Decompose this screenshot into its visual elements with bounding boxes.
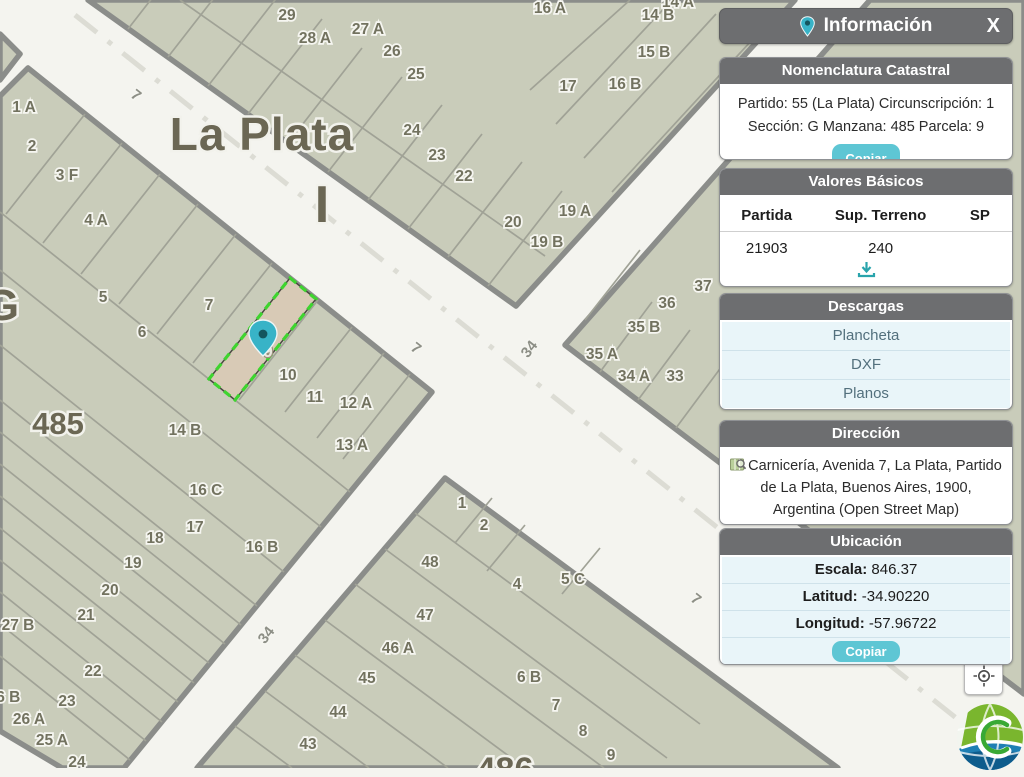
escala-label: Escala:	[815, 561, 868, 578]
parcel-label: 4 A	[84, 212, 108, 229]
sup-terreno-value: 240	[813, 232, 947, 260]
nomenclatura-line1: Partido: 55 (La Plata) Circunscripción: …	[720, 93, 1012, 116]
parcel-label: 23	[428, 147, 446, 164]
longitud-label: Longitud:	[796, 615, 865, 632]
parcel-label: 48	[421, 554, 439, 571]
street-label: 34	[255, 623, 279, 647]
street-label: 7	[127, 86, 144, 105]
longitud-row: Longitud: -57.96722	[722, 611, 1010, 638]
parcel-label: 1	[458, 495, 467, 512]
latitud-value: -34.90220	[862, 588, 930, 605]
parcel-label: 20	[101, 582, 118, 599]
direccion-text: Carnicería, Avenida 7, La Plata, Partido…	[748, 458, 1002, 518]
download-plancheta-link[interactable]: Plancheta	[722, 322, 1010, 351]
parcel-label: 36	[658, 295, 676, 312]
copy-nomenclatura-button[interactable]: Copiar	[832, 144, 899, 160]
parcel-label: 18	[146, 530, 164, 547]
parcel-label: 25 A	[36, 732, 68, 749]
parcel-label: 13 A	[336, 437, 368, 454]
escala-row: Escala: 846.37	[722, 557, 1010, 584]
section-valores-title: Valores Básicos	[720, 169, 1012, 195]
section-direccion-title: Dirección	[720, 421, 1012, 447]
nomenclatura-line2: Sección: G Manzana: 485 Parcela: 9	[720, 116, 1012, 139]
parcel-label: 47	[416, 607, 433, 624]
close-icon[interactable]: X	[987, 14, 1000, 38]
section-ubicacion: Ubicación Escala: 846.37 Latitud: -34.90…	[719, 528, 1013, 665]
parcel-label: 27 A	[352, 21, 384, 38]
street-label: 7	[407, 339, 424, 358]
parcel-label: 35 A	[586, 346, 618, 363]
section-ubicacion-title: Ubicación	[720, 529, 1012, 555]
parcel-label: 5 C	[561, 571, 585, 588]
parcel-label: 33	[666, 368, 684, 385]
parcel-label: 44	[329, 704, 347, 721]
parcel-label: 24	[403, 122, 421, 139]
parcel-label: 45	[358, 670, 376, 687]
panel-header: Información X	[719, 8, 1013, 44]
street-label: 34	[518, 337, 542, 361]
block-number-label: 485	[32, 406, 84, 441]
parcel-label: 16 B	[609, 76, 642, 93]
sp-value	[948, 232, 1012, 260]
parcel-label: 17	[559, 78, 576, 95]
parcel-label: 16 C	[190, 482, 223, 499]
parcel-label: 43	[299, 736, 317, 753]
parcel-label: 7	[552, 697, 561, 714]
parcel-label: 5	[99, 289, 108, 306]
parcel-label: 1 A	[12, 99, 36, 116]
section-nomenclatura-title: Nomenclatura Catastral	[720, 58, 1012, 84]
section-valores: Valores Básicos Partida Sup. Terreno SP …	[719, 168, 1013, 287]
longitud-value: -57.96722	[869, 615, 937, 632]
parcel-label: 29	[278, 7, 296, 24]
parcel-label: 21	[77, 607, 95, 624]
section-direccion: Dirección Carnicería, Avenida 7, La Plat…	[719, 420, 1013, 525]
parcel-label: 19	[124, 555, 142, 572]
parcel-label: 22	[455, 168, 472, 185]
valores-table: Partida Sup. Terreno SP 21903 240	[720, 201, 1012, 259]
parcel-label: 19 B	[531, 234, 564, 251]
parcel-label: 11	[307, 389, 324, 406]
parcel-label: 8	[579, 723, 588, 740]
info-panel: Información X Nomenclatura Catastral Par…	[719, 0, 1013, 768]
parcel-label: 26 A	[13, 711, 45, 728]
parcel-label: 16 A	[534, 0, 566, 17]
partida-value: 21903	[720, 232, 813, 260]
parcel-label: 15 B	[638, 44, 671, 61]
parcel-label: 2	[28, 138, 37, 155]
col-partida: Partida	[720, 201, 813, 232]
parcel-label: 7	[205, 297, 214, 314]
section-nomenclatura: Nomenclatura Catastral Partido: 55 (La P…	[719, 57, 1013, 160]
ubicacion-footer: Copiar	[722, 638, 1010, 665]
parcel-label: 22	[84, 663, 101, 680]
latitud-label: Latitud:	[803, 588, 858, 605]
parcel-label: 3 F	[56, 167, 78, 184]
col-sup-terreno: Sup. Terreno	[813, 201, 947, 232]
block-number-south-label: 486	[477, 751, 534, 768]
roman-label: I	[315, 176, 329, 234]
parcel-label: 34 A	[618, 368, 650, 385]
download-dxf-link[interactable]: DXF	[722, 351, 1010, 380]
parcel-label: 14 B	[169, 422, 202, 439]
escala-value: 846.37	[871, 561, 917, 578]
parcel-label: 12 A	[340, 395, 372, 412]
street-label: 7	[687, 590, 704, 609]
panel-title: Información	[824, 15, 933, 37]
parcel-label: 23	[58, 693, 76, 710]
parcel-label: 19 A	[559, 203, 591, 220]
parcel-label: 14 A	[662, 0, 694, 11]
col-sp: SP	[948, 201, 1012, 232]
parcel-label: 46 A	[382, 640, 414, 657]
parcel-label: 9	[607, 747, 616, 764]
parcel-label: 17	[186, 519, 203, 536]
section-descargas: Descargas Plancheta DXF Planos	[719, 293, 1013, 410]
parcel-label: 4	[513, 576, 522, 593]
parcel-label: 10	[279, 367, 296, 384]
parcel-label: 26 B	[0, 689, 20, 706]
copy-ubicacion-button[interactable]: Copiar	[832, 641, 899, 662]
section-letter-label: G	[0, 281, 19, 330]
parcel-label: 6	[138, 324, 147, 341]
download-icon[interactable]	[857, 261, 876, 278]
parcel-label: 16 B	[246, 539, 279, 556]
parcel-label: 6 B	[517, 669, 541, 686]
parcel-label: 25	[407, 66, 425, 83]
parcel-label: 20	[504, 214, 521, 231]
latitud-row: Latitud: -34.90220	[722, 584, 1010, 611]
parcel-label: 35 B	[628, 319, 661, 336]
parcel-label: 37	[694, 278, 711, 295]
parcel-label: 2	[480, 517, 489, 534]
map-search-icon	[730, 457, 746, 472]
parcel-label: 28 A	[299, 30, 331, 47]
section-descargas-title: Descargas	[720, 294, 1012, 320]
cadastral-map-app: { "panel": { "title": "Información", "cl…	[0, 0, 1024, 768]
parcel-label: 26	[383, 43, 401, 60]
pin-icon	[800, 16, 815, 37]
download-planos-link[interactable]: Planos	[722, 380, 1010, 408]
valores-row: 21903 240	[720, 232, 1012, 260]
parcel-label: 27 B	[2, 617, 35, 634]
block-northwest-corner[interactable]	[0, 34, 20, 80]
parcel-label: 24	[68, 754, 86, 768]
city-label: La Plata	[170, 108, 354, 160]
